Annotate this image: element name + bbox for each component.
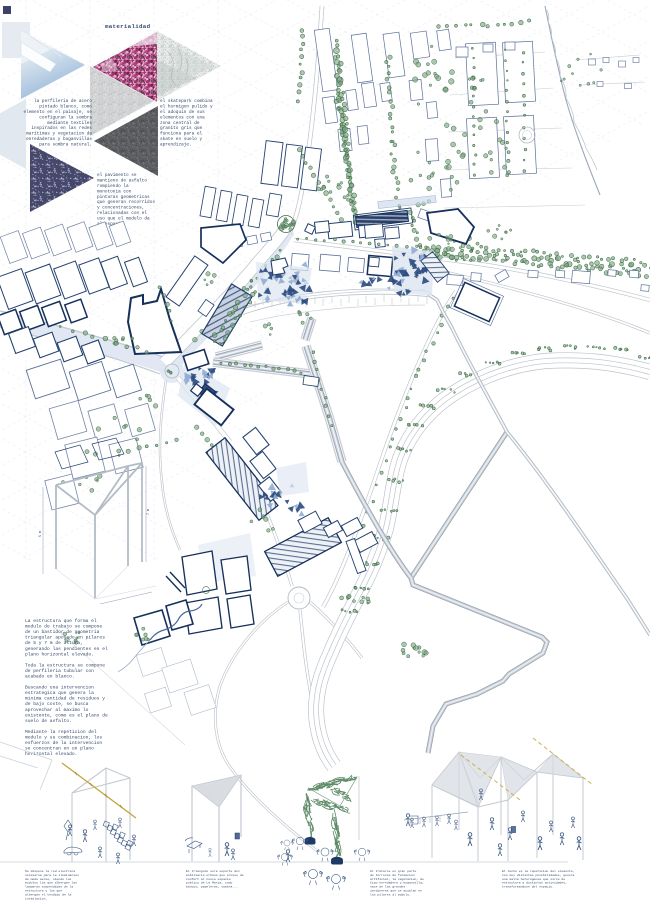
svg-text:5 m: 5 m	[39, 531, 43, 537]
svg-text:7 m: 7 m	[147, 509, 151, 515]
svg-text:el pavimento semantiene de asf: el pavimento semantiene de asfaltorompie…	[97, 173, 155, 227]
svg-text:Se dispone la red electricanec: Se dispone la red electricanecesaria par…	[25, 869, 79, 900]
svg-text:materialidad: materialidad	[105, 23, 151, 30]
